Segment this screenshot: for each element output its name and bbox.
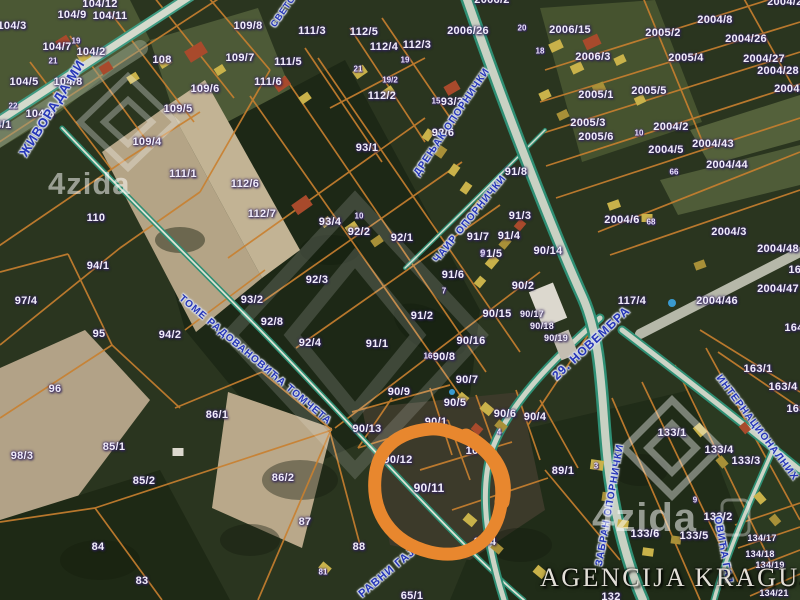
satellite-map: 104/12104/9104/11104/3104/7104/2108104/5…: [0, 0, 800, 600]
watermark-text-bottom-right: 4zida: [592, 496, 697, 541]
watermark-text-top-left: 4zida: [48, 166, 131, 202]
agency-caption: AGENCIJA KRAGUJSTAN: [540, 563, 800, 593]
